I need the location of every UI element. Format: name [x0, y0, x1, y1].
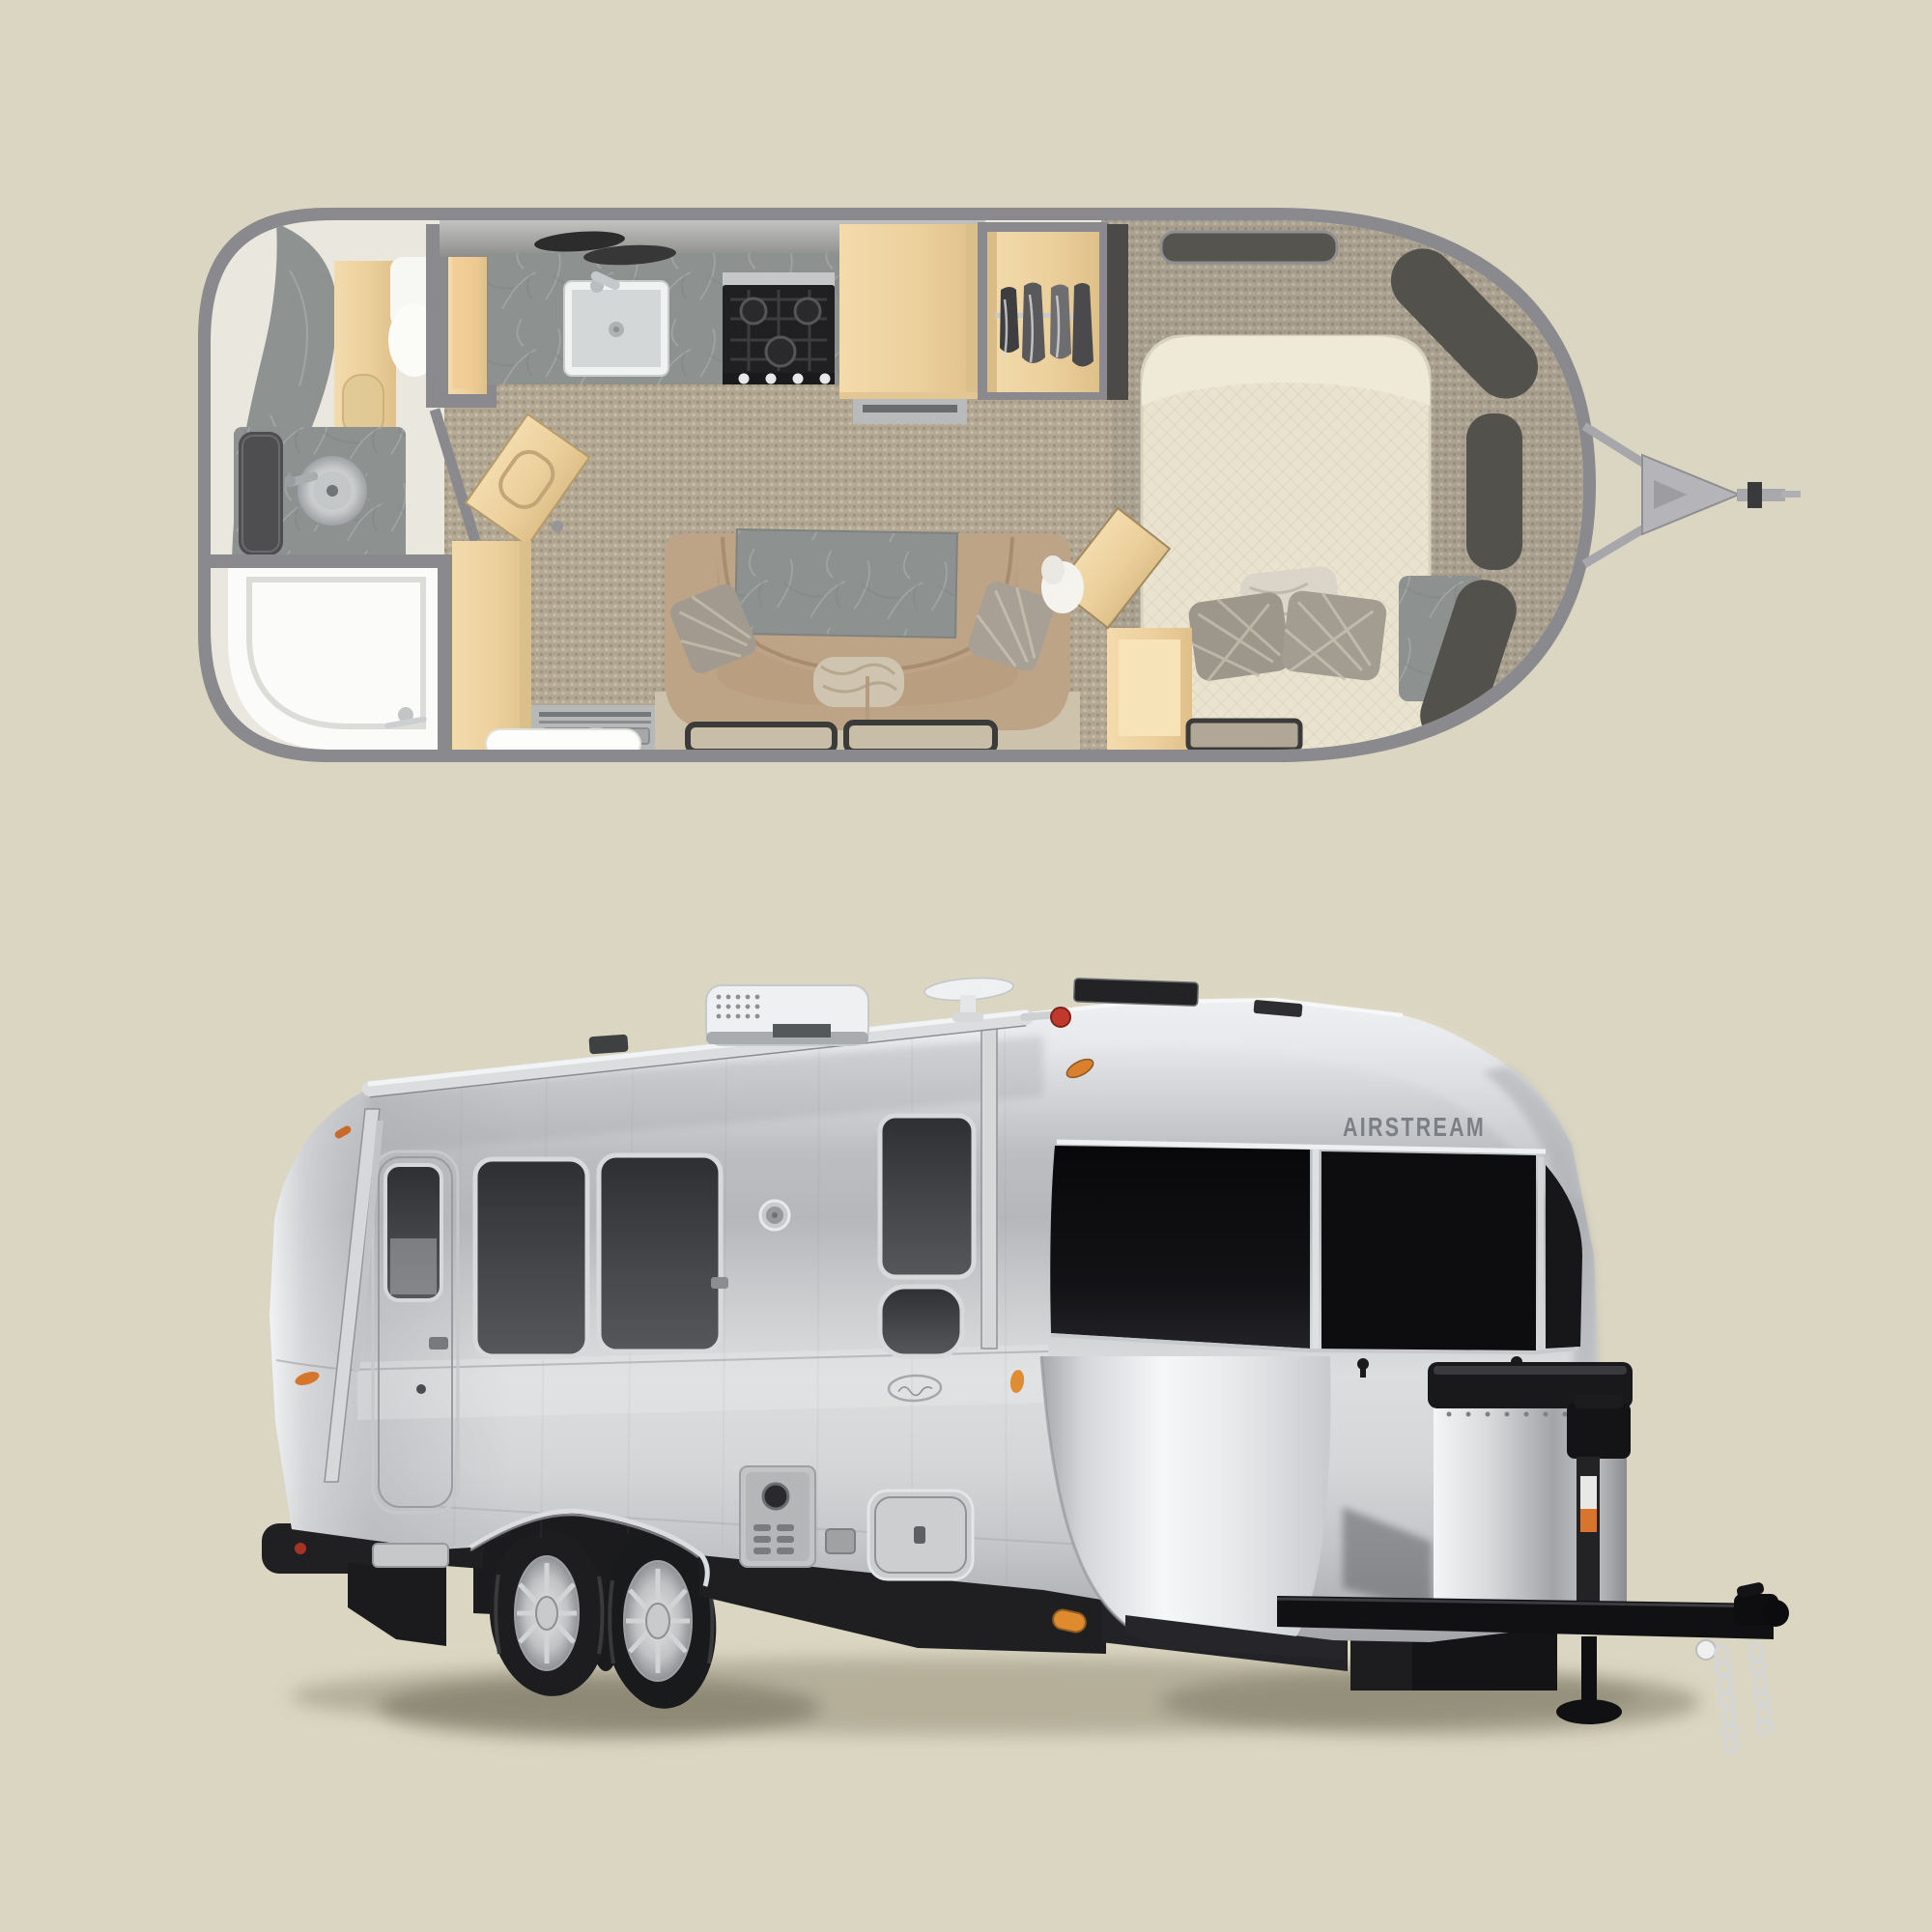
svg-text:AIRSTREAM: AIRSTREAM — [1343, 1112, 1486, 1142]
